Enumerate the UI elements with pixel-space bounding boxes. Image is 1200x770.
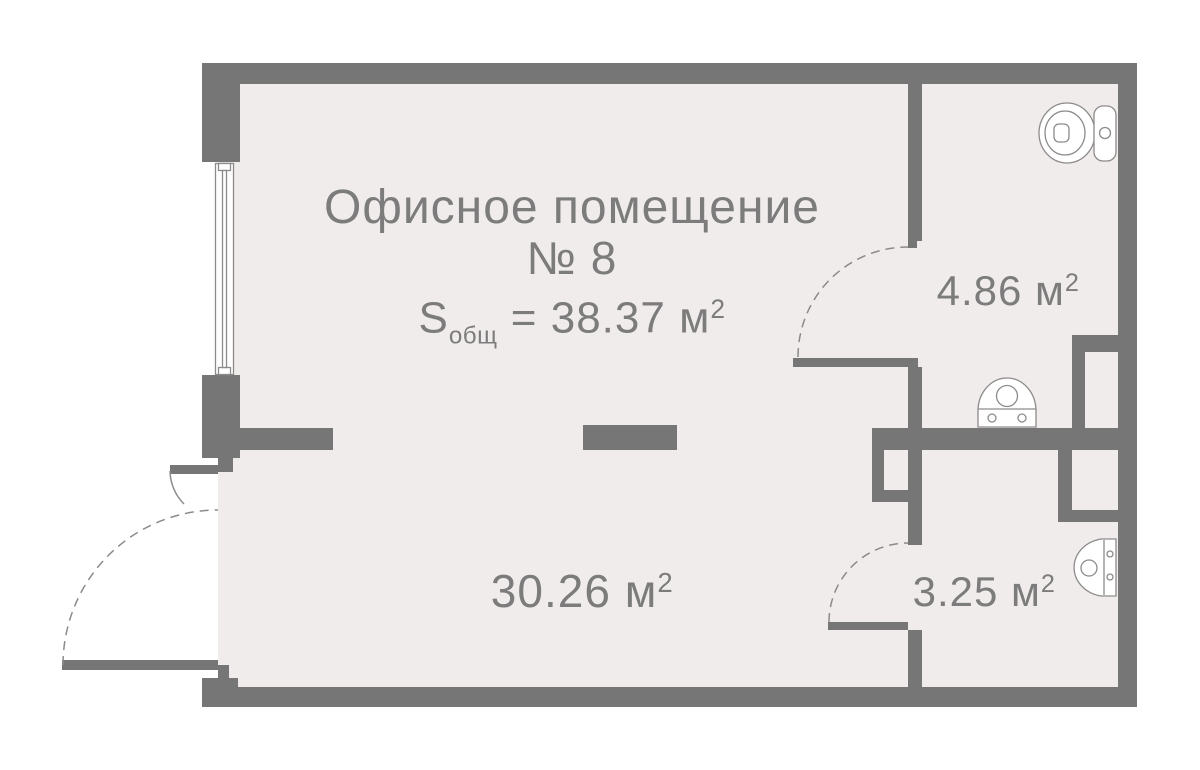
entrance-swing-arc [63,510,218,665]
title-line-2: № 8 [324,233,820,283]
room-label-office: 30.26 м2 [491,564,673,618]
sink-icon [1074,539,1116,596]
wc-area-value: 4.86 [937,267,1023,314]
bathroom-area-sup: 2 [1041,570,1056,598]
plan-graphics [0,0,1200,770]
area-subscript: общ [449,322,498,349]
wc-area-sup: 2 [1065,269,1080,297]
window-icon [216,164,234,375]
office-area-unit: м [625,565,658,617]
plan-title: Офисное помещение № 8 Sобщ = 38.37 м2 [324,183,820,362]
entrance-small-leaf-arc [170,471,184,504]
area-value: 38.37 [551,294,666,343]
office-area-sup: 2 [657,567,673,598]
area-unit: м [679,294,710,343]
area-symbol: S [418,294,448,343]
office-area-value: 30.26 [491,565,611,617]
bathroom-area-unit: м [1011,568,1041,615]
area-equals: = [511,294,538,343]
total-area: Sобщ = 38.37 м2 [324,283,820,362]
title-line-1: Офисное помещение [324,183,820,233]
sink-icon [978,378,1036,427]
bathroom-area-value: 3.25 [913,568,999,615]
room-label-wc: 4.86 м2 [937,267,1080,315]
area-unit-sup: 2 [710,294,725,324]
wc-area-unit: м [1035,267,1065,314]
door2-swing-arc [829,543,908,622]
room-label-bathroom: 3.25 м2 [913,568,1056,616]
floor-plan: Офисное помещение № 8 Sобщ = 38.37 м2 30… [0,0,1200,770]
toilet-icon [1039,103,1116,163]
